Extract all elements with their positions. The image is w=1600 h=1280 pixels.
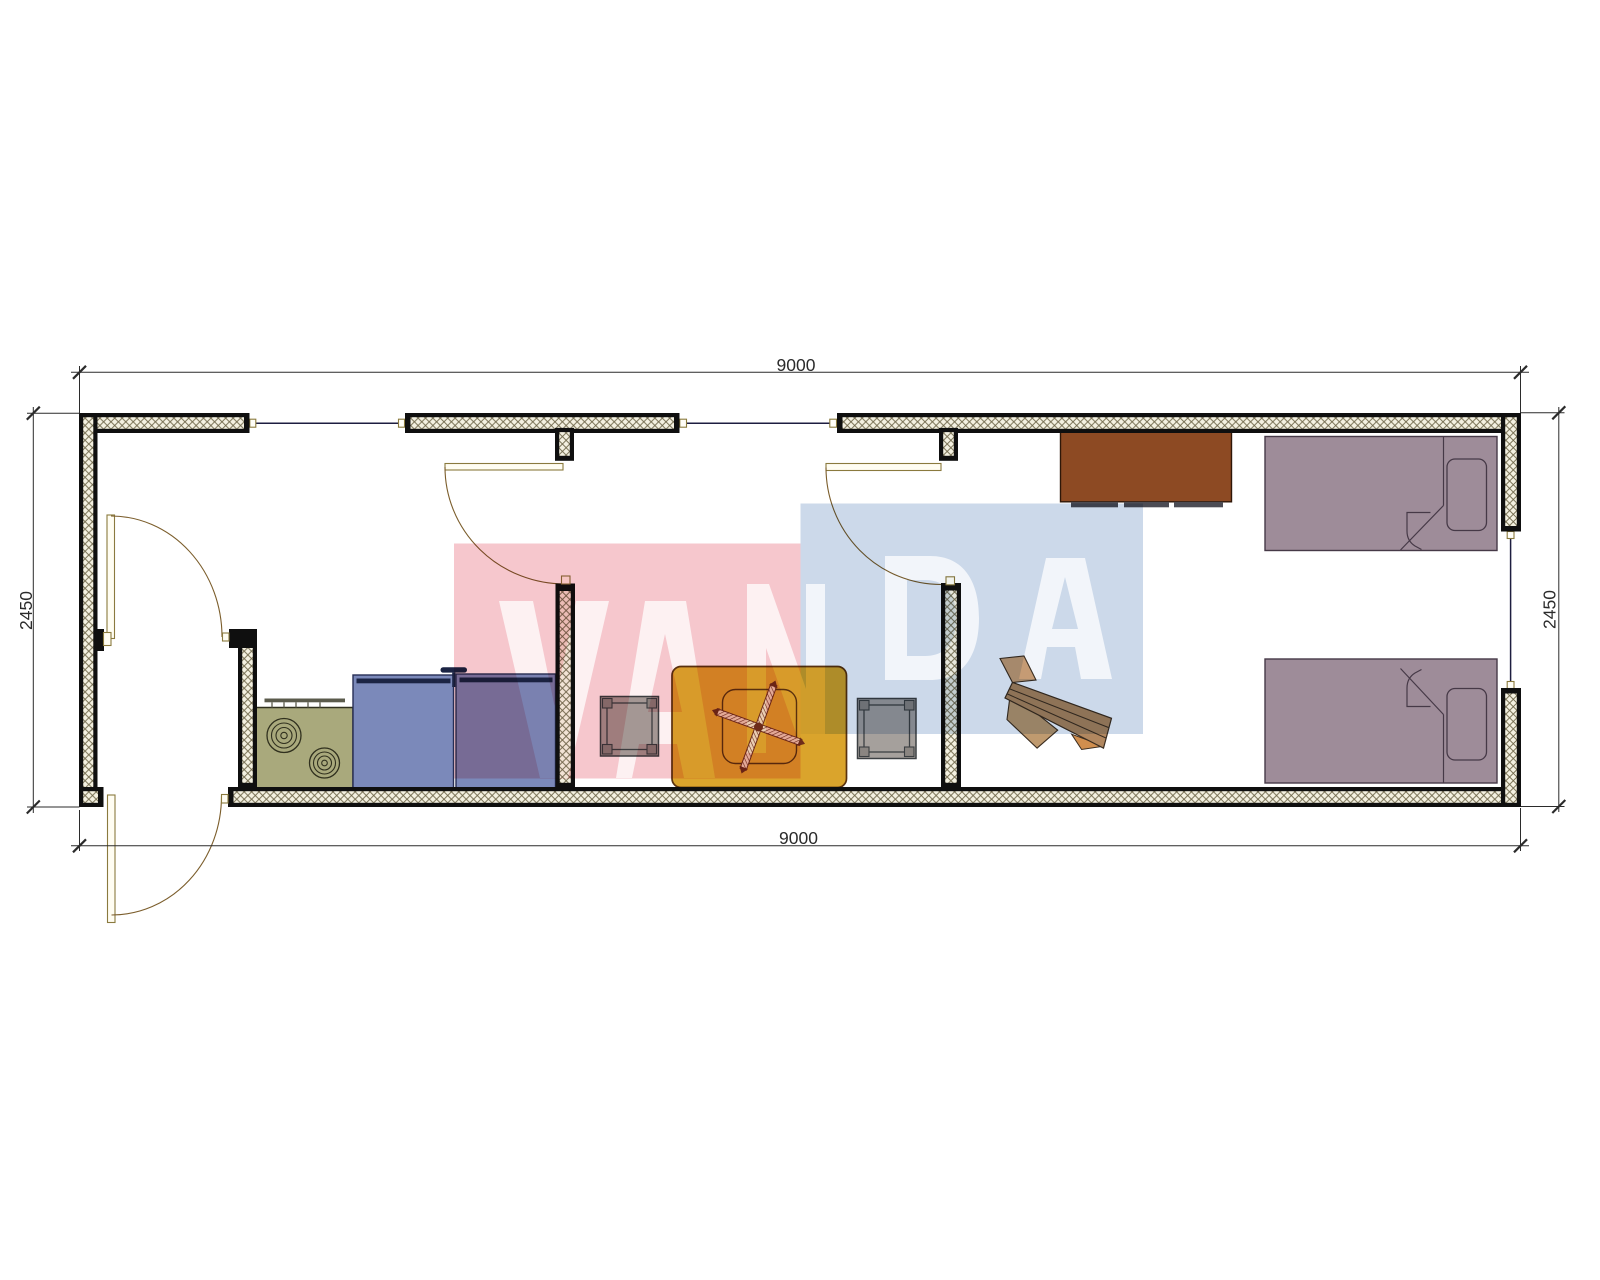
svg-text:2450: 2450 (1540, 590, 1560, 629)
svg-text:9000: 9000 (779, 828, 818, 848)
svg-text:2450: 2450 (16, 591, 36, 630)
svg-text:9000: 9000 (777, 355, 816, 375)
